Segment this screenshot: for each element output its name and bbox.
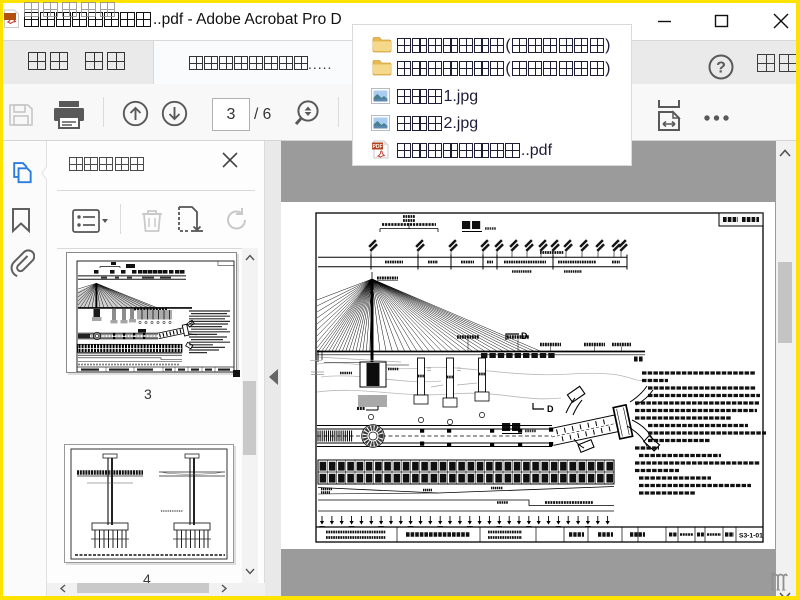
svg-text:D: D: [547, 404, 554, 414]
svg-text:?: ?: [716, 60, 726, 77]
svg-text:D: D: [521, 331, 528, 341]
svg-text:PDF: PDF: [373, 144, 383, 150]
svg-text:S3-1-01: S3-1-01: [739, 533, 763, 540]
